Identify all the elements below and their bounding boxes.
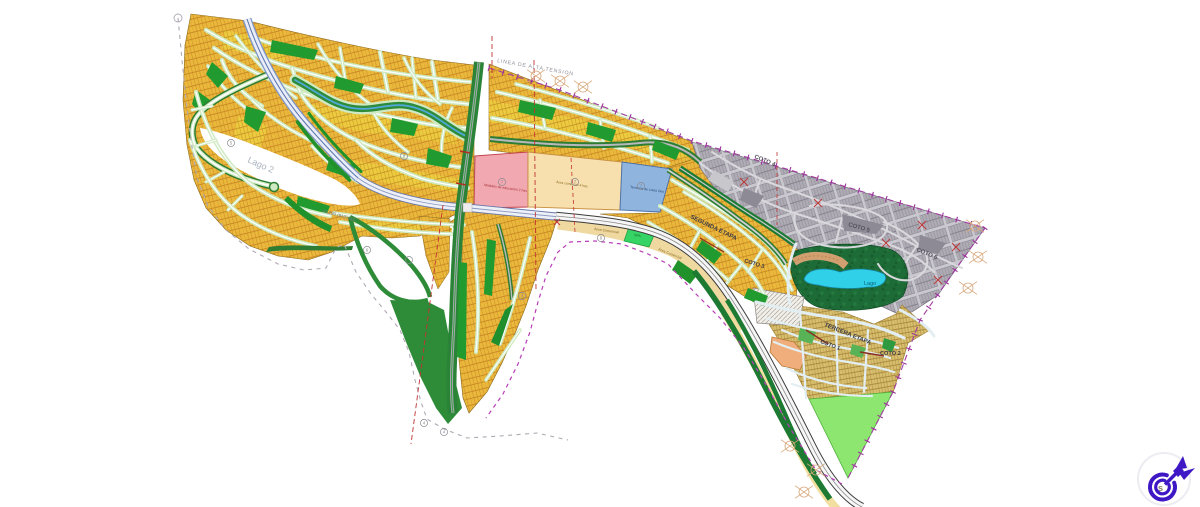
svg-text:COTO 2: COTO 2 bbox=[880, 351, 901, 357]
svg-text:s: s bbox=[1158, 483, 1163, 493]
svg-text:Lago: Lago bbox=[864, 281, 876, 287]
